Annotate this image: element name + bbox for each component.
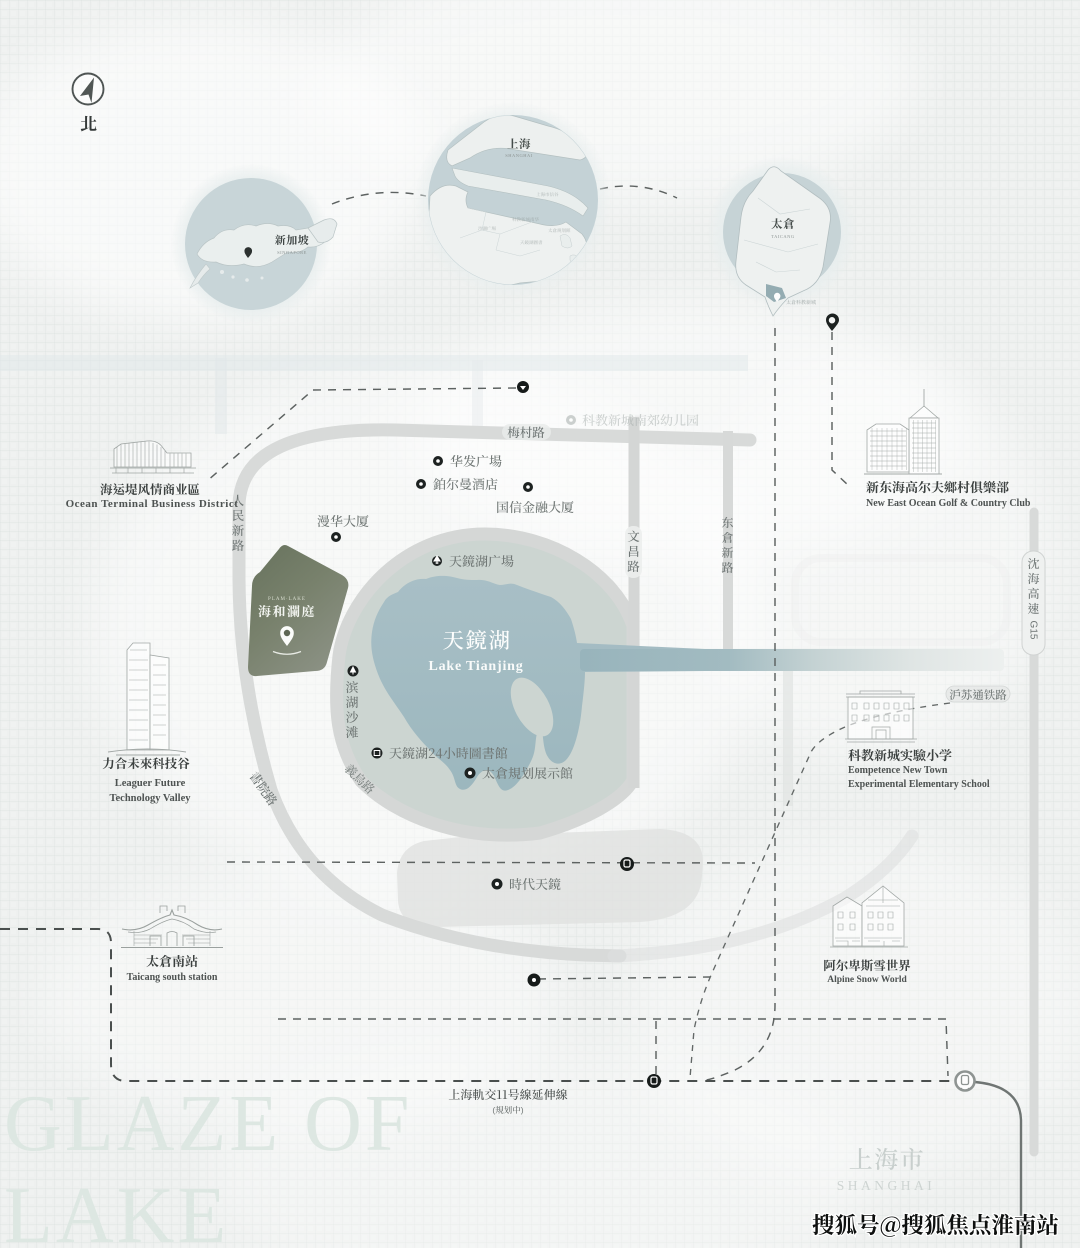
svg-text:GLAZE OF: GLAZE OF	[4, 1080, 412, 1168]
svg-text:沙湖广場: 沙湖广場	[478, 226, 496, 232]
svg-text:Eompetence New Town: Eompetence New Town	[848, 765, 948, 776]
svg-text:G15: G15	[1028, 621, 1039, 640]
svg-text:上海: 上海	[507, 136, 531, 152]
svg-text:上海軌交11号線延伸線: 上海軌交11号線延伸線	[448, 1086, 567, 1103]
svg-text:SHANGHAI: SHANGHAI	[505, 153, 533, 158]
svg-text:搜狐号@搜狐焦点淮南站: 搜狐号@搜狐焦点淮南站	[812, 1208, 1059, 1240]
svg-text:鉑尔曼酒店: 鉑尔曼酒店	[433, 474, 498, 493]
svg-text:梅村路: 梅村路	[507, 423, 545, 441]
svg-text:太倉: 太倉	[771, 216, 795, 232]
svg-text:天鏡湖: 天鏡湖	[442, 624, 511, 655]
svg-text:阿尔卑斯雪世界: 阿尔卑斯雪世界	[823, 956, 911, 974]
svg-text:SHANGHAI: SHANGHAI	[837, 1178, 936, 1193]
svg-text:滩: 滩	[345, 722, 358, 741]
svg-text:太倉南站: 太倉南站	[146, 951, 198, 970]
svg-text:海和瀾庭: 海和瀾庭	[258, 601, 316, 620]
svg-text:新加坡: 新加坡	[275, 232, 310, 248]
svg-text:(規划中): (規划中)	[492, 1104, 523, 1116]
svg-text:LAKE: LAKE	[4, 1172, 229, 1248]
svg-text:Experimental Elementary School: Experimental Elementary School	[848, 779, 990, 790]
svg-text:Alpine Snow World: Alpine Snow World	[827, 975, 907, 985]
svg-text:漫华大厦: 漫华大厦	[317, 511, 369, 530]
svg-text:Taicang south station: Taicang south station	[127, 972, 218, 983]
svg-text:Ocean Terminal Business Distri: Ocean Terminal Business District	[66, 498, 239, 510]
svg-text:速: 速	[1027, 600, 1039, 617]
svg-text:Technology Valley: Technology Valley	[109, 793, 191, 804]
svg-text:科教新城南郊幼儿园: 科教新城南郊幼儿园	[582, 410, 699, 429]
svg-text:路: 路	[232, 536, 245, 554]
svg-text:Leaguer Future: Leaguer Future	[115, 778, 186, 789]
svg-text:時代天鏡: 時代天鏡	[509, 874, 561, 893]
svg-text:SINGAPORE: SINGAPORE	[277, 250, 307, 255]
svg-text:天鏡湖圖書: 天鏡湖圖書	[520, 240, 543, 246]
svg-text:New East Ocean Golf & Country: New East Ocean Golf & Country Club	[866, 498, 1031, 509]
svg-text:华发广場: 华发广場	[450, 451, 502, 470]
svg-text:Lake Tianjing: Lake Tianjing	[428, 659, 523, 674]
svg-text:新东海高尔夫鄉村俱樂部: 新东海高尔夫鄉村俱樂部	[866, 477, 1009, 496]
svg-text:路: 路	[721, 559, 733, 576]
svg-text:国信金融大厦: 国信金融大厦	[496, 497, 574, 516]
svg-text:科教新城南华: 科教新城南华	[512, 217, 539, 223]
svg-text:北: 北	[80, 110, 97, 135]
svg-text:太倉科教新城: 太倉科教新城	[786, 299, 816, 306]
svg-text:天鏡湖24小時圖書館: 天鏡湖24小時圖書館	[389, 743, 508, 762]
svg-text:TAICANG: TAICANG	[771, 234, 795, 239]
svg-text:上海市信谷: 上海市信谷	[536, 192, 559, 198]
svg-text:天鏡湖广場: 天鏡湖广場	[449, 551, 514, 570]
svg-text:路: 路	[627, 557, 640, 575]
svg-text:力合未來科技谷: 力合未來科技谷	[102, 754, 190, 772]
svg-text:上海市: 上海市	[849, 1140, 926, 1175]
svg-text:海运堤风情商业區: 海运堤风情商业區	[100, 480, 200, 498]
svg-text:科教新城实驗小学: 科教新城实驗小学	[848, 745, 952, 764]
svg-text:太倉規划展示館: 太倉規划展示館	[482, 763, 573, 782]
svg-text:太倉規划館: 太倉規划館	[548, 228, 571, 234]
svg-text:沪苏通铁路: 沪苏通铁路	[949, 687, 1007, 703]
